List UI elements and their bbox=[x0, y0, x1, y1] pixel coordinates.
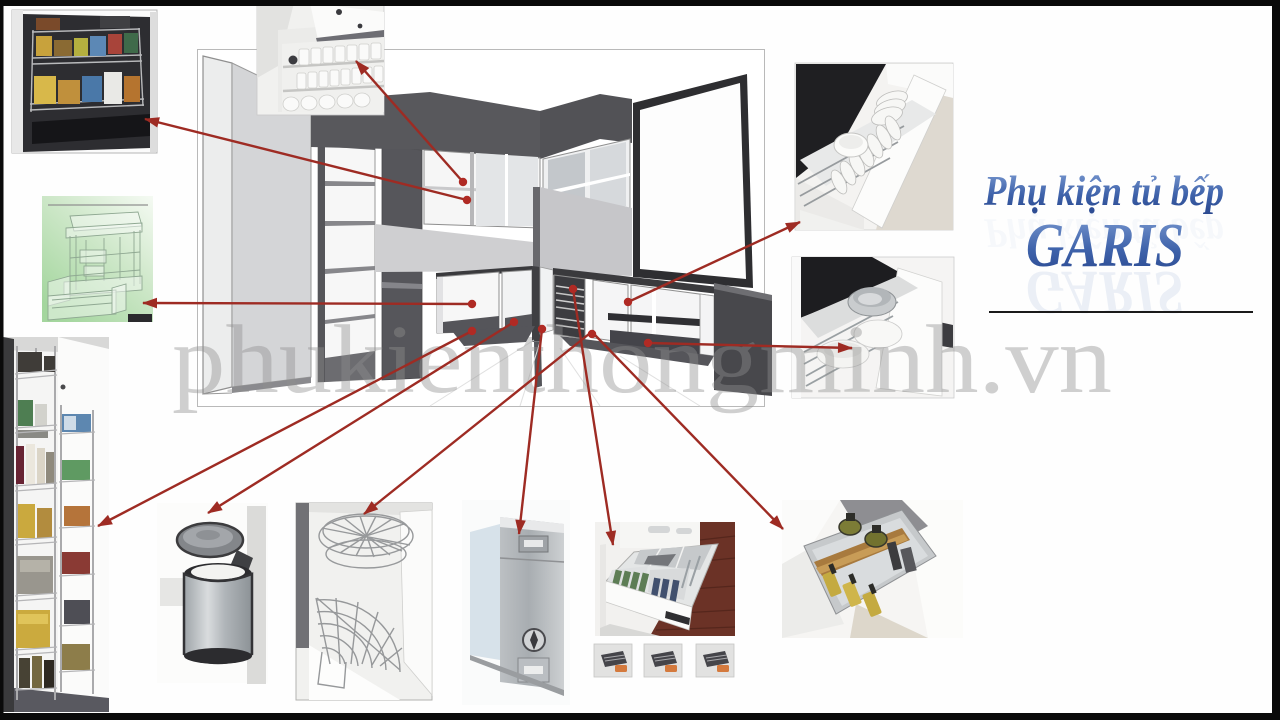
svg-text:GARIS: GARIS bbox=[1026, 258, 1184, 326]
svg-text:Phụ kiện tủ bếp: Phụ kiện tủ bếp bbox=[983, 169, 1224, 215]
svg-text:phukienthongminh.vn: phukienthongminh.vn bbox=[172, 306, 1112, 413]
